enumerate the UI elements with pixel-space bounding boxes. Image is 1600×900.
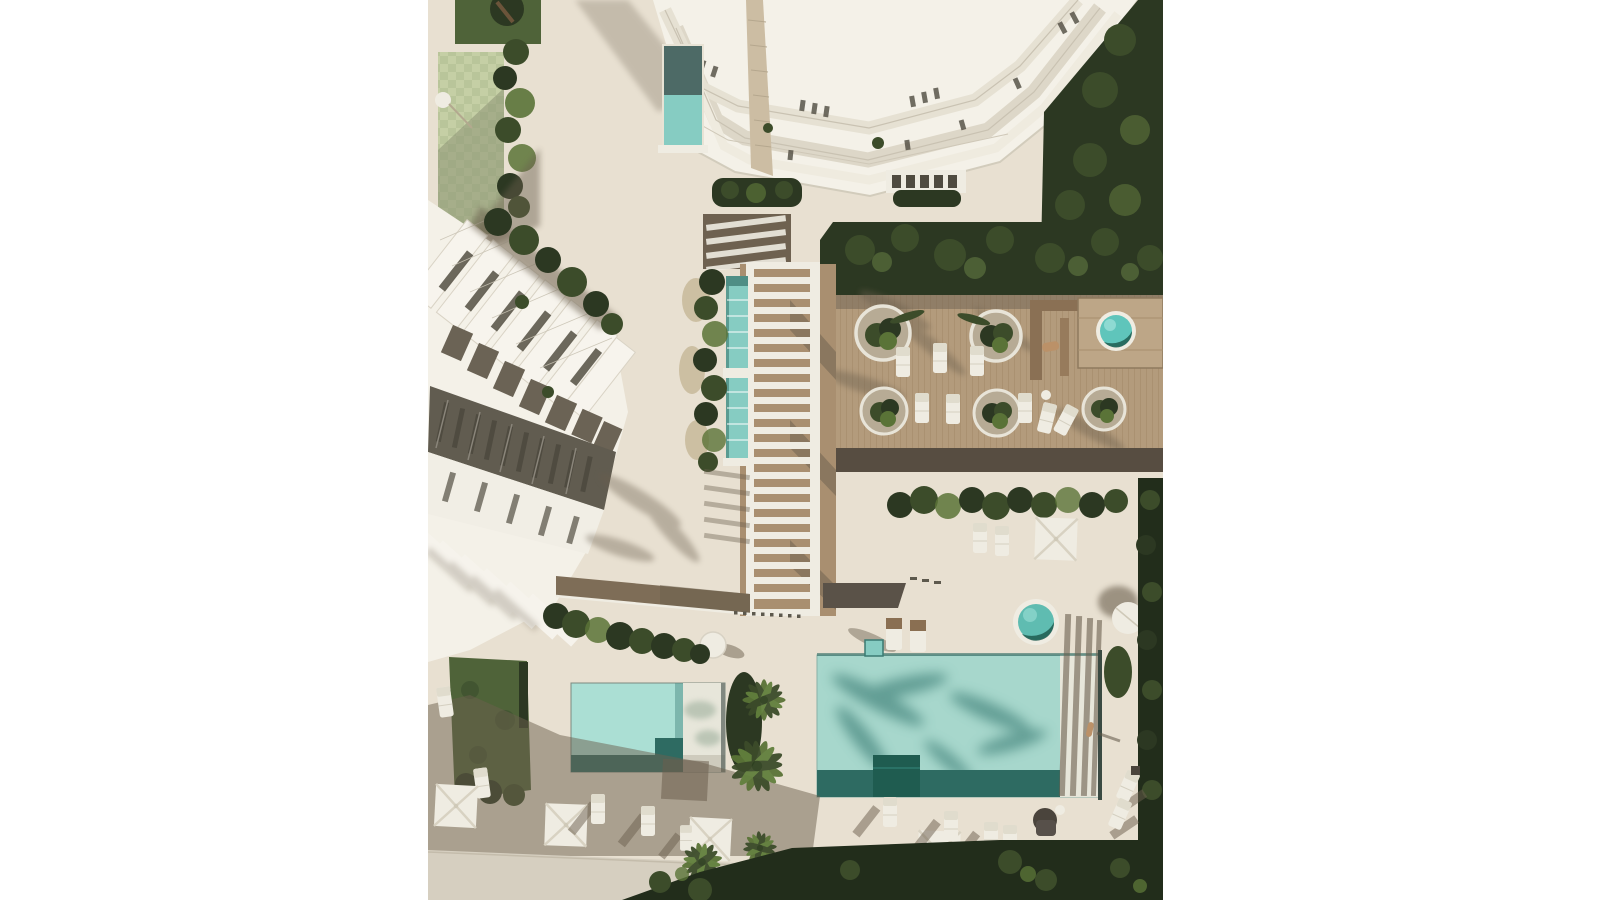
- right-plant: [1104, 646, 1132, 698]
- balcony-plant: [763, 123, 773, 133]
- pool-right-rim: [1098, 650, 1102, 800]
- hot-tub-platform: [1078, 298, 1163, 368]
- parasol-shadow-square: [661, 759, 709, 801]
- tower-pool: [658, 45, 708, 153]
- timber-deck: [820, 284, 1163, 472]
- plunge-pool: [1013, 599, 1059, 645]
- small-parasol: [435, 92, 451, 108]
- balcony-plant: [872, 137, 884, 149]
- pool-step-box: [865, 640, 883, 656]
- deck-ramp: [823, 583, 906, 608]
- balcony-plant: [515, 295, 529, 309]
- square-parasol: [434, 784, 478, 828]
- deck-edge-shadow: [820, 448, 1163, 472]
- base-hedge: [893, 190, 961, 207]
- lounger: [995, 526, 1009, 556]
- lounger: [973, 523, 987, 553]
- side-table: [1041, 390, 1051, 400]
- pool-platform: [873, 755, 920, 797]
- pool-deep-edge: [817, 770, 1060, 797]
- aerial-render-canvas: [0, 0, 1600, 900]
- side-table: [1131, 766, 1140, 775]
- hot-tub: [1096, 311, 1136, 351]
- balcony-plant: [542, 386, 554, 398]
- lap-pool: [723, 276, 751, 466]
- square-parasol: [1034, 517, 1077, 560]
- palm-tree: [742, 679, 785, 720]
